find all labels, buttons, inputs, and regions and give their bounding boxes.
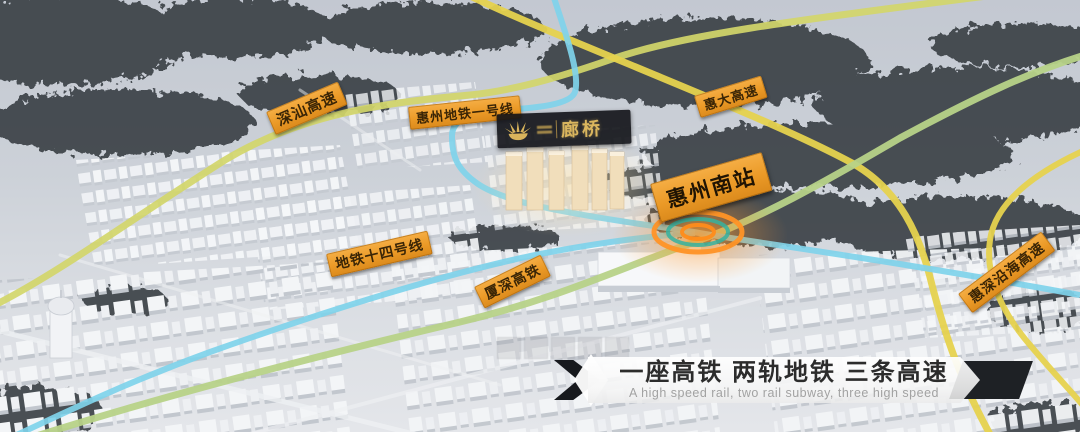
dome-tower xyxy=(48,290,74,358)
crown-icon xyxy=(503,119,534,142)
banner-title: 一座高铁 两轨地铁 三条高速 xyxy=(619,360,948,386)
project-plaque: 廊桥 xyxy=(496,110,631,149)
project-brand-mark xyxy=(537,125,552,134)
banner-band: 一座高铁 两轨地铁 三条高速 A high speed rail, two ra… xyxy=(588,357,980,403)
banner-subtitle: A high speed rail, two rail subway, thre… xyxy=(629,386,939,400)
headline-banner: 一座高铁 两轨地铁 三条高速 A high speed rail, two ra… xyxy=(548,351,1044,409)
project-name: 廊桥 xyxy=(561,115,604,142)
plaque-divider xyxy=(556,120,558,138)
aerial-map-render: 深汕高速 惠州地铁一号线 惠大高速 惠州南站 地铁十四号线 厦深高铁 惠深沿海高… xyxy=(0,0,1080,432)
